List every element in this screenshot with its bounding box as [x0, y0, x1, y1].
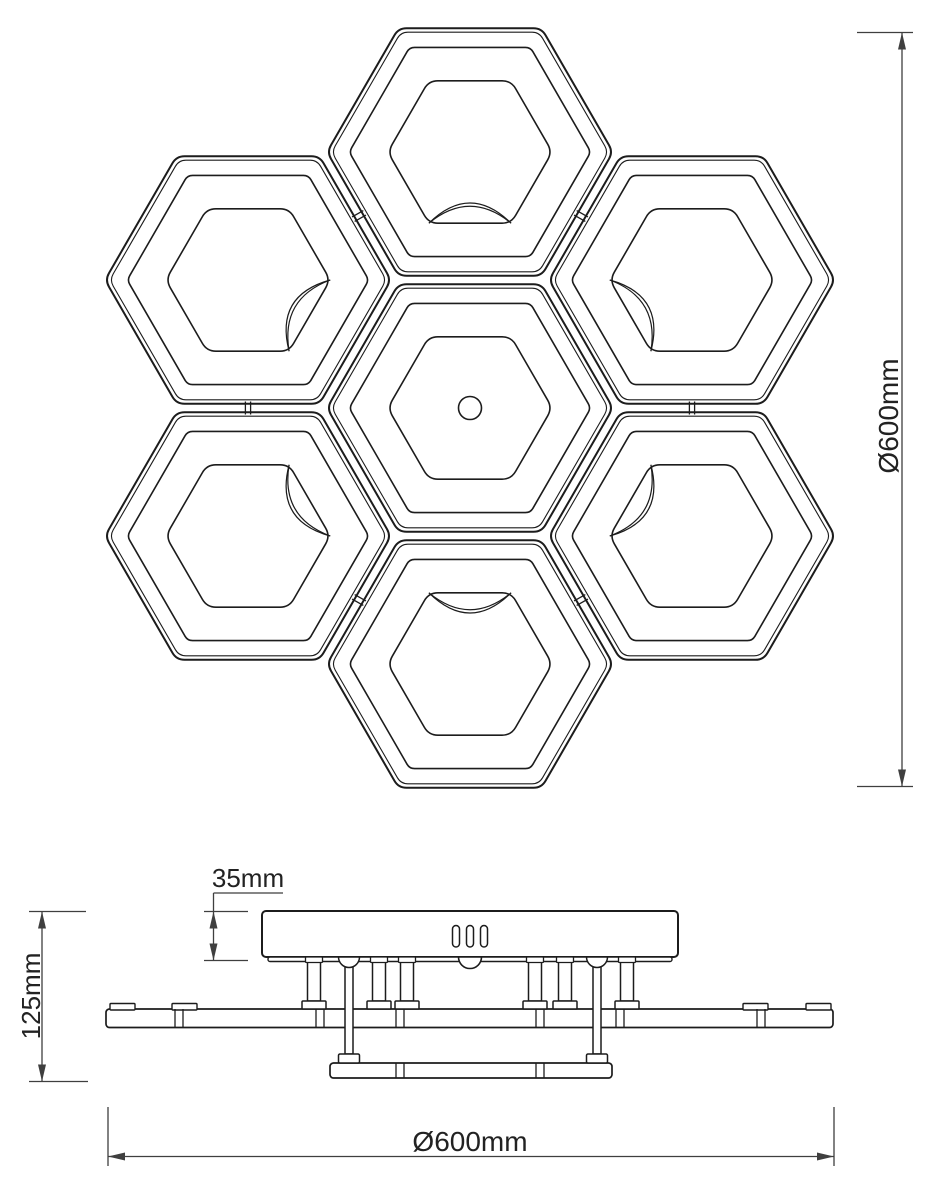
- top-view-diameter-label: Ø600mm: [873, 358, 904, 473]
- total-height-label: 125mm: [16, 953, 46, 1040]
- technical-drawing-canvas: 35mm 125mm Ø600mm Ø600mm: [0, 0, 932, 1190]
- post-collar: [557, 957, 574, 963]
- drawing-page: 35mm 125mm Ø600mm Ø600mm: [0, 0, 932, 1190]
- vent-slot: [453, 926, 460, 948]
- post-base: [615, 1001, 639, 1009]
- post-base: [395, 1001, 419, 1009]
- hex-panel-plate: [106, 1009, 833, 1028]
- plate-connector-tab: [172, 1004, 197, 1011]
- post-shaft: [529, 957, 542, 1001]
- post-shaft: [401, 957, 414, 1001]
- post-base: [553, 1001, 577, 1009]
- post-shaft: [621, 957, 634, 1001]
- post-base: [523, 1001, 547, 1009]
- plate-connector-tab: [806, 1004, 831, 1011]
- post-base: [302, 1001, 326, 1009]
- plate-connector-tab: [743, 1004, 768, 1011]
- canopy-height-label: 35mm: [212, 863, 284, 893]
- post-collar: [306, 957, 323, 963]
- plate-connector-tab: [110, 1004, 135, 1011]
- vent-slot: [467, 926, 474, 948]
- bottom-hex-panel-plate: [330, 1063, 612, 1078]
- rod-shaft: [345, 959, 353, 1055]
- post-shaft: [308, 957, 321, 1001]
- post-collar: [527, 957, 544, 963]
- rod-shaft: [593, 959, 601, 1055]
- vent-slot: [481, 926, 488, 948]
- rod-foot: [587, 1054, 608, 1063]
- rod-foot: [339, 1054, 360, 1063]
- post-shaft: [559, 957, 572, 1001]
- post-collar: [371, 957, 388, 963]
- post-collar: [399, 957, 416, 963]
- post-collar: [619, 957, 636, 963]
- bottom-diameter-label: Ø600mm: [412, 1126, 527, 1157]
- post-base: [367, 1001, 391, 1009]
- post-shaft: [373, 957, 386, 1001]
